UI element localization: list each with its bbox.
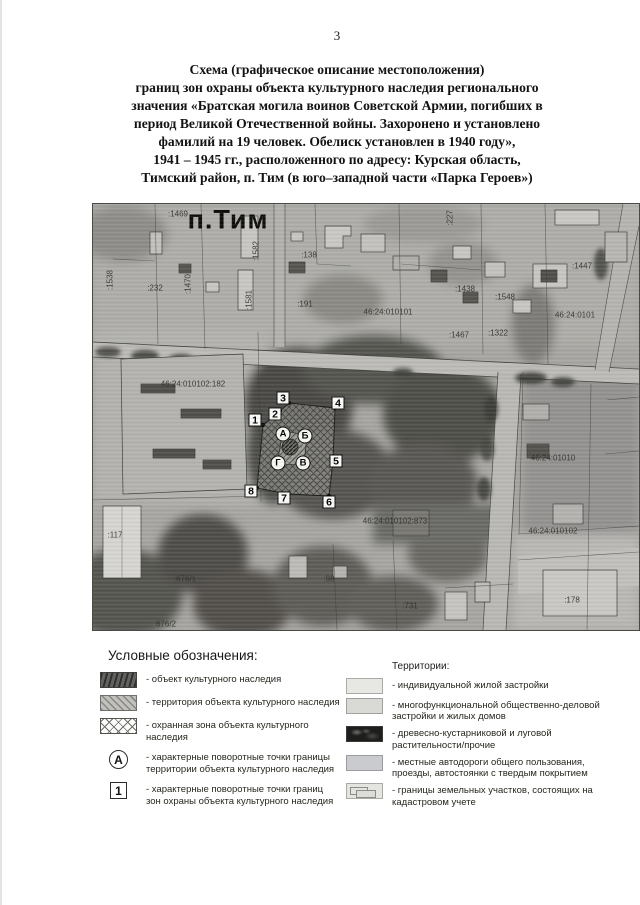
cadastral-label: :1470: [184, 274, 193, 294]
parcels-swatch: [346, 783, 383, 799]
circle-swatch: А: [109, 750, 128, 769]
zone-point-marker: 6: [323, 496, 336, 509]
legend-item-label: - характерные поворотные точки границ зо…: [146, 782, 333, 807]
cadastral-label: 46:24:01010: [531, 454, 576, 463]
legend-item: - границы земельных участков, состоящих …: [346, 783, 640, 808]
legend-swatch-cell: [346, 783, 383, 799]
cadastral-label: :232: [147, 284, 163, 293]
cadastral-label: :227: [446, 210, 455, 226]
legend-item: - местные автодороги общего пользования,…: [346, 755, 640, 780]
cadastral-label: 46:24:010101: [364, 308, 413, 317]
multifunc-swatch: [346, 698, 383, 714]
cadastral-label: 676/2: [156, 620, 176, 629]
title-line: границ зон охраны объекта культурного на…: [40, 79, 634, 97]
heritage-object: [282, 439, 298, 455]
cadastral-label: :1538: [106, 270, 115, 290]
legend-swatch-cell: [100, 718, 137, 734]
aerial-map: п.Тим :1469:227:1538:232:1470:1582:1581:…: [92, 203, 640, 631]
legend-item: А- характерные поворотные точки границы …: [100, 750, 352, 775]
legend-swatch-cell: [346, 755, 383, 771]
title-line: фамилий на 19 человек. Обелиск установле…: [40, 133, 634, 151]
title-line: период Великой Отечественной войны. Захо…: [40, 115, 634, 133]
vegetation-swatch: [346, 726, 383, 742]
legend-item: - объект культурного наследия: [100, 672, 352, 688]
cadastral-label: :1438: [455, 285, 475, 294]
legend-territories-heading: Территории:: [392, 661, 640, 672]
aerial-photo: [93, 204, 639, 630]
legend-heading: Условные обозначения:: [108, 648, 352, 663]
territory-point-marker: Г: [271, 456, 286, 471]
territory-point-marker: А: [276, 427, 291, 442]
square-swatch: 1: [110, 782, 127, 799]
legend-item-label: - границы земельных участков, состоящих …: [392, 783, 593, 808]
legend-item-label: - многофункциональной общественно-делово…: [392, 698, 600, 723]
legend-item: - древесно-кустарниковой и луговой расти…: [346, 726, 640, 751]
legend-right-items: - индивидуальной жилой застройки- многоф…: [346, 678, 640, 808]
legend-item-label: - индивидуальной жилой застройки: [392, 678, 549, 692]
cadastral-label: :191: [297, 300, 313, 309]
legend-item-label: - местные автодороги общего пользования,…: [392, 755, 588, 780]
document-title: Схема (графическое описание местоположен…: [40, 61, 634, 187]
legend-swatch-cell: [346, 678, 383, 694]
cadastral-label: 46:24:0101: [555, 311, 595, 320]
cadastral-label: :1548: [495, 293, 515, 302]
cadastral-label: 46:24:010102:182: [161, 380, 226, 389]
residential-swatch: [346, 678, 383, 694]
legend-swatch-cell: [100, 672, 137, 688]
legend-item: - многофункциональной общественно-делово…: [346, 698, 640, 723]
legend-right-column: Территории: - индивидуальной жилой застр…: [346, 661, 640, 812]
cadastral-label: :1581: [245, 290, 254, 310]
legend-item: - индивидуальной жилой застройки: [346, 678, 640, 694]
legend-item-label: - древесно-кустарниковой и луговой расти…: [392, 726, 552, 751]
legend-swatch-cell: [346, 698, 383, 714]
territory-swatch: [100, 695, 137, 711]
cadastral-label: :1447: [572, 262, 592, 271]
zone-swatch: [100, 718, 137, 734]
legend-swatch-cell: 1: [100, 782, 137, 799]
cadastral-label: :1322: [488, 329, 508, 338]
object-swatch: [100, 672, 137, 688]
cadastral-label: :1469: [168, 210, 188, 219]
settlement-label: п.Тим: [188, 205, 269, 236]
cadastral-label: :1467: [449, 331, 469, 340]
zone-point-marker: 3: [277, 392, 290, 405]
cadastral-label: :138: [301, 251, 317, 260]
cadastral-label: :1582: [252, 241, 261, 261]
zone-point-marker: 1: [249, 414, 262, 427]
legend-swatch-cell: [100, 695, 137, 711]
cadastral-label: 46:24:010102: [529, 527, 578, 536]
territory-point-marker: В: [296, 456, 311, 471]
roads-swatch: [346, 755, 383, 771]
title-line: Схема (графическое описание местоположен…: [40, 61, 634, 79]
title-line: значения «Братская могила воинов Советск…: [40, 97, 634, 115]
zone-point-marker: 5: [330, 455, 343, 468]
legend-item-label: - объект культурного наследия: [146, 672, 281, 686]
zone-point-marker: 2: [269, 408, 282, 421]
title-line: 1941 – 1945 гг., расположенного по адрес…: [40, 151, 634, 169]
zone-vertex-dot: [261, 423, 265, 427]
cadastral-label: 46:24:010102:873: [363, 517, 428, 526]
cadastral-label: :117: [108, 531, 123, 540]
document-page: 3 Схема (графическое описание местополож…: [0, 0, 640, 905]
zone-point-marker: 4: [332, 397, 345, 410]
legend-left-column: Условные обозначения: - объект культурно…: [100, 648, 352, 814]
legend: Условные обозначения: - объект культурно…: [0, 648, 640, 823]
legend-item-label: - территория объекта культурного наследи…: [146, 695, 340, 709]
zone-point-marker: 8: [245, 485, 258, 498]
cadastral-label: :731: [402, 602, 418, 611]
cadastral-label: :98: [323, 575, 334, 584]
territory-point-marker: Б: [298, 429, 313, 444]
legend-item: - территория объекта культурного наследи…: [100, 695, 352, 711]
cadastral-label: :676/1: [174, 575, 196, 584]
title-line: Тимский район, п. Тим (в юго–западной ча…: [40, 169, 634, 187]
legend-item: - охранная зона объекта культурного насл…: [100, 718, 352, 743]
legend-item-label: - характерные поворотные точки границы т…: [146, 750, 334, 775]
legend-swatch-cell: [346, 726, 383, 742]
legend-item-label: - охранная зона объекта культурного насл…: [146, 718, 352, 743]
page-number: 3: [40, 28, 634, 44]
legend-left-items: - объект культурного наследия- территори…: [100, 672, 352, 807]
zone-point-marker: 7: [278, 492, 291, 505]
cadastral-label: :178: [564, 596, 580, 605]
legend-swatch-cell: А: [100, 750, 137, 769]
legend-item: 1- характерные поворотные точки границ з…: [100, 782, 352, 807]
